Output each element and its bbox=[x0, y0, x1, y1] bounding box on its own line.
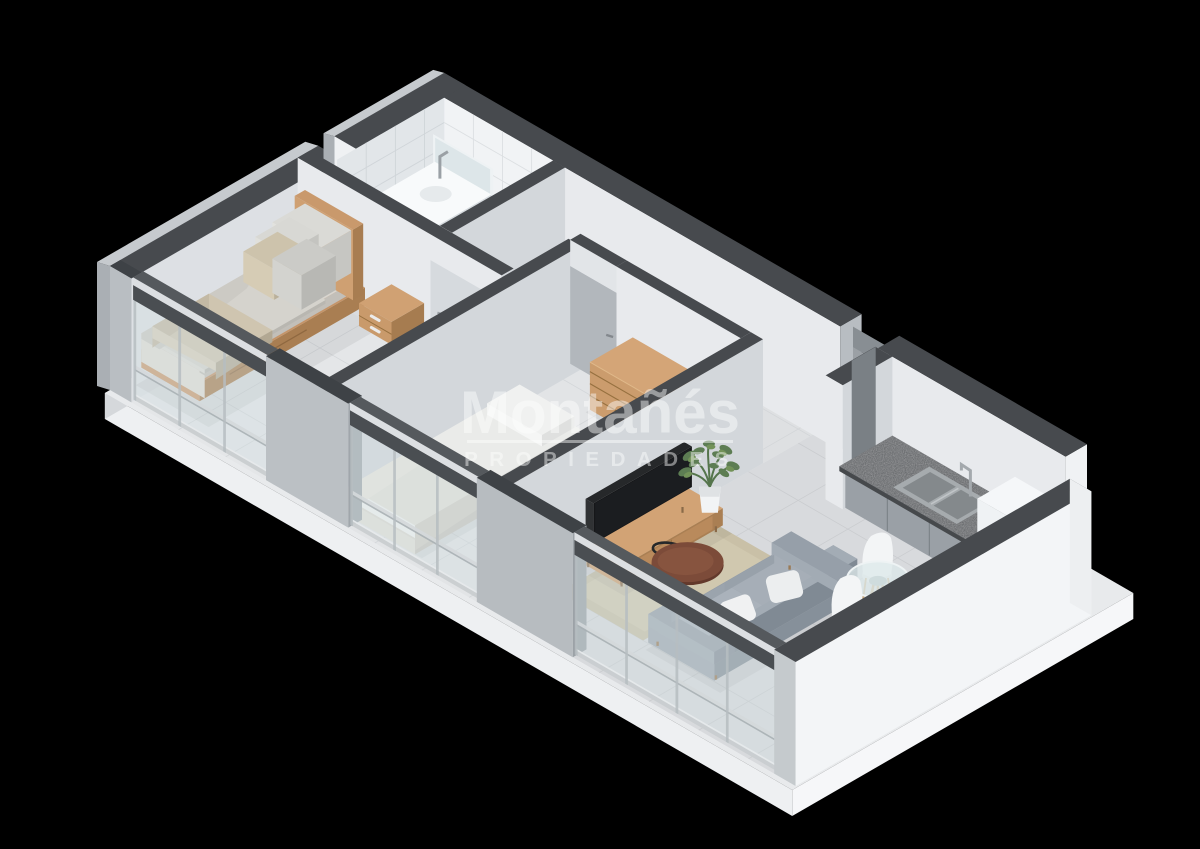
svg-text:PROPIEDADES: PROPIEDADES bbox=[464, 448, 740, 471]
svg-text:Montañés: Montañés bbox=[460, 379, 740, 446]
